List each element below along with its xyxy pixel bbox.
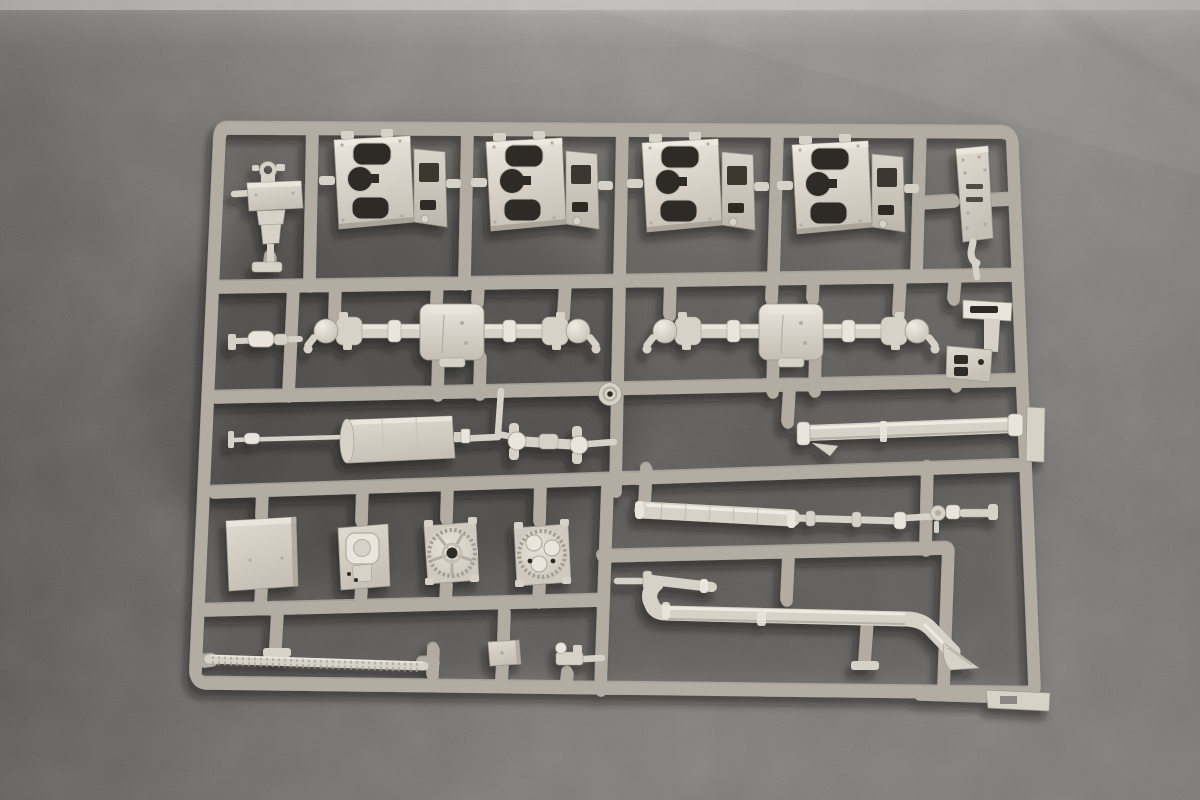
fuel-tank-box [340, 416, 470, 463]
connector-tab-bottom [986, 690, 1050, 711]
runner-foot-pad [263, 648, 291, 657]
photo-model-kit-sprue: Light grey injection-moulded plastic mod… [0, 0, 1200, 800]
sprue-photo-svg: Light grey injection-moulded plastic mod… [0, 0, 1200, 800]
runner-foot-pad-2 [851, 661, 879, 670]
geared-drum-2 [514, 519, 571, 587]
connector-tab [1026, 407, 1045, 462]
geared-drum-1 [424, 517, 479, 585]
winch-box [338, 524, 390, 590]
washer-disc [599, 383, 622, 406]
stowage-box-flat [226, 517, 298, 591]
junction-box-small [488, 640, 521, 666]
